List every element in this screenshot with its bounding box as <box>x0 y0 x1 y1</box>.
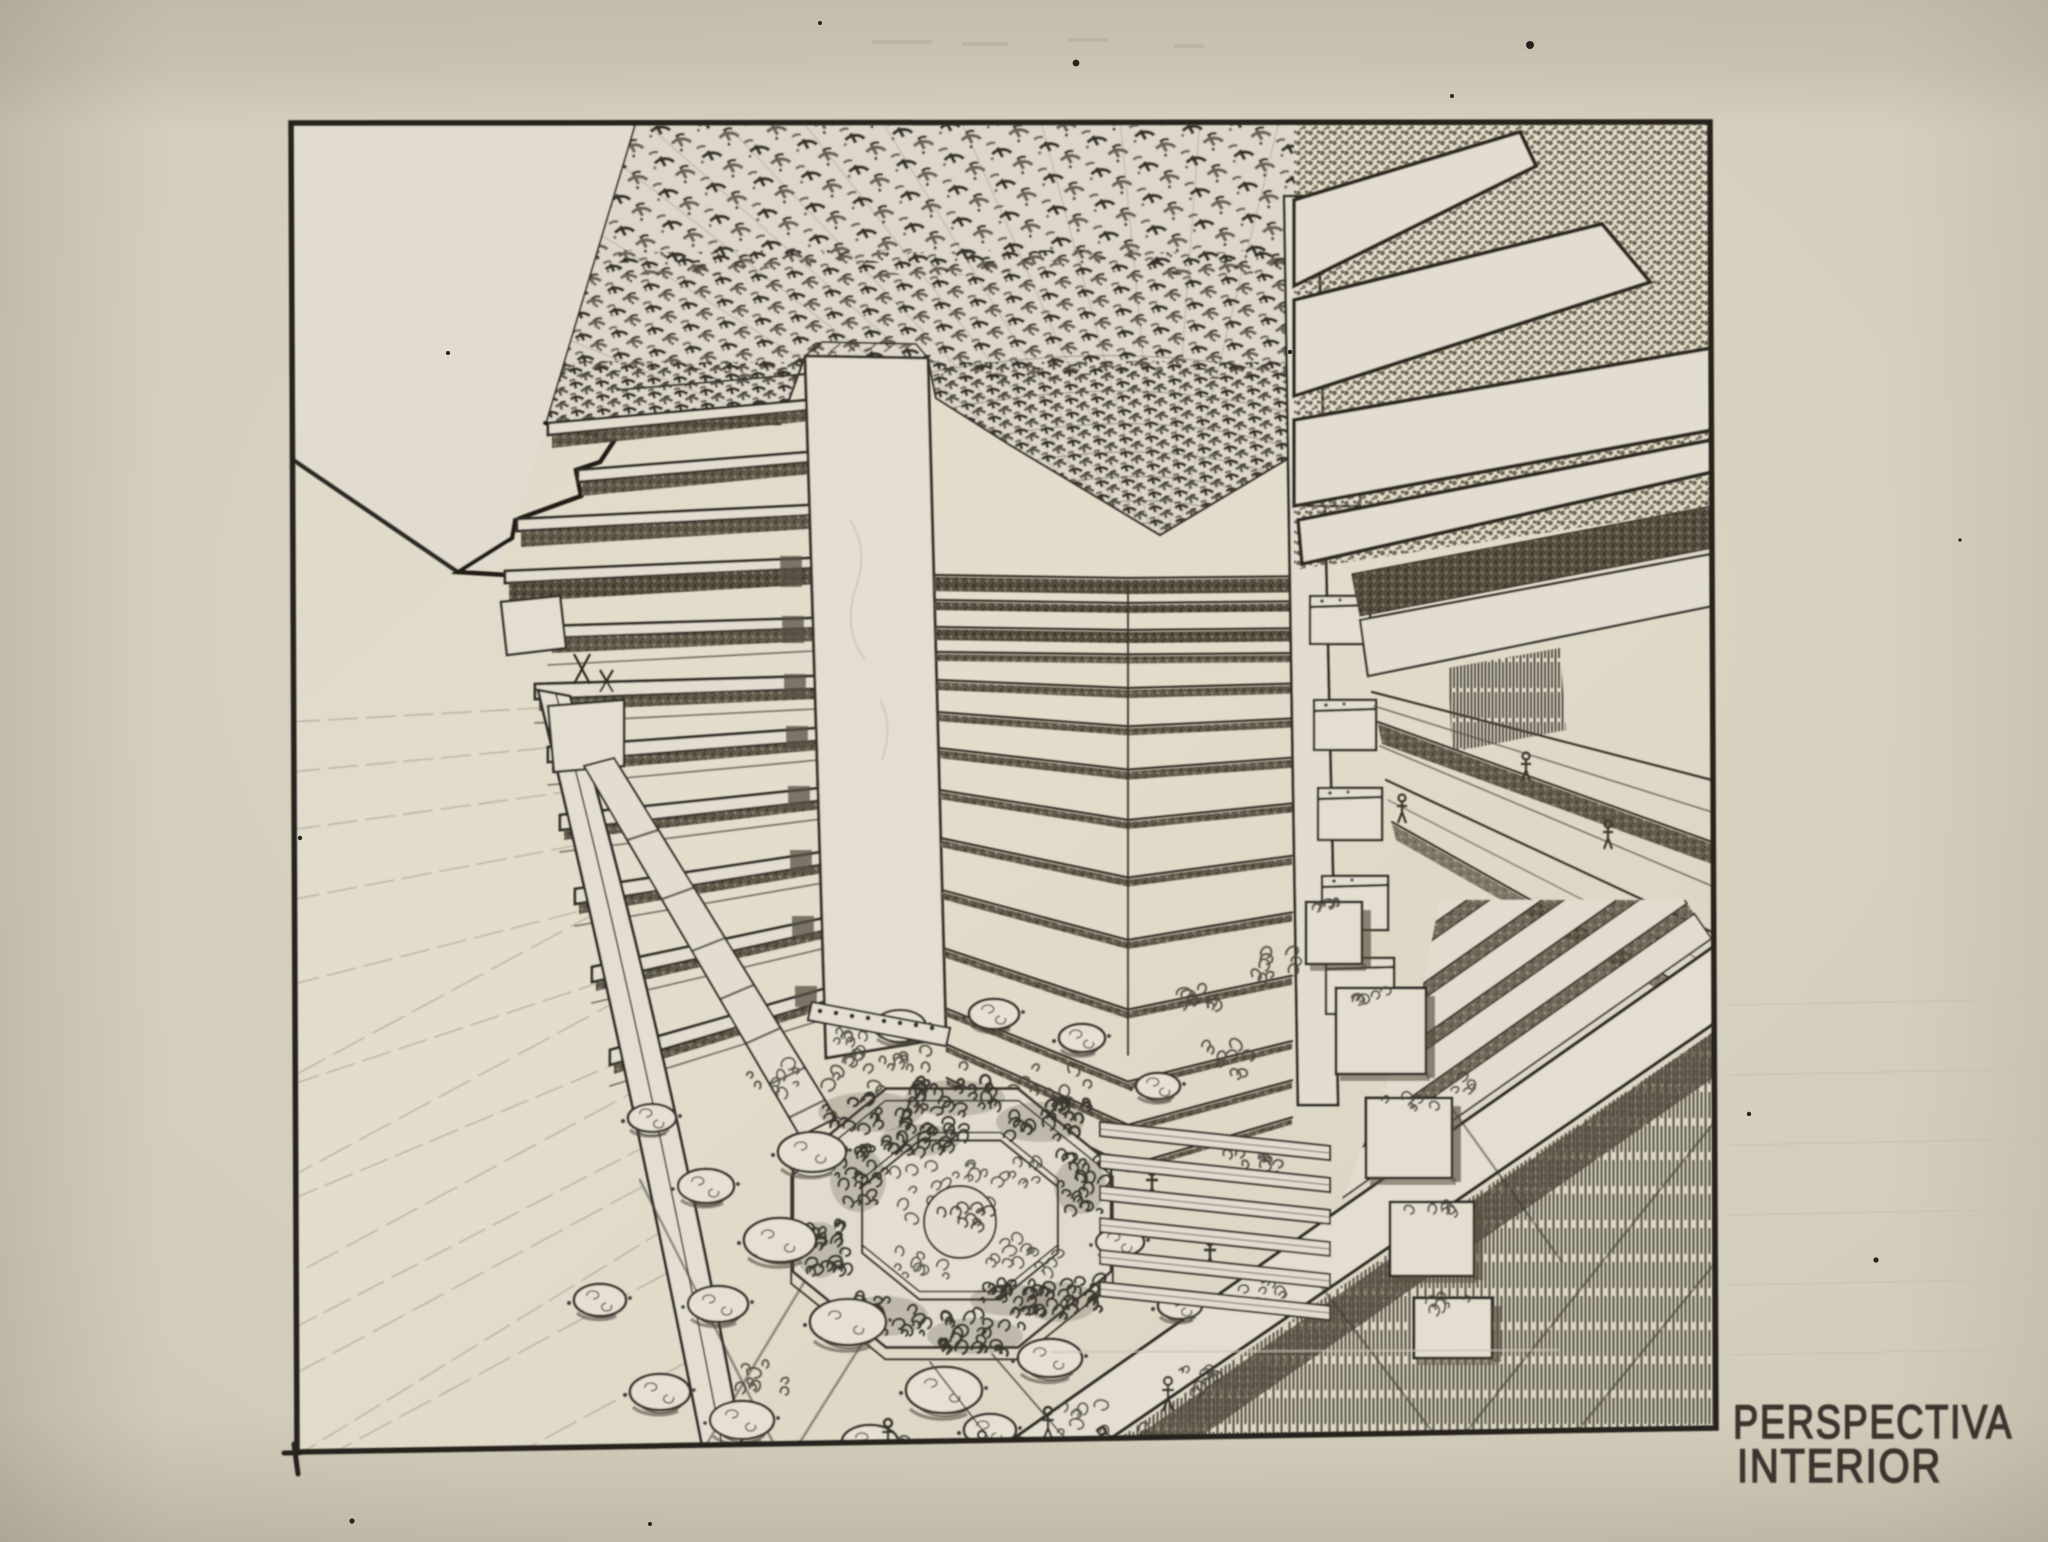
svg-text:INTERIOR: INTERIOR <box>1737 1439 1942 1492</box>
